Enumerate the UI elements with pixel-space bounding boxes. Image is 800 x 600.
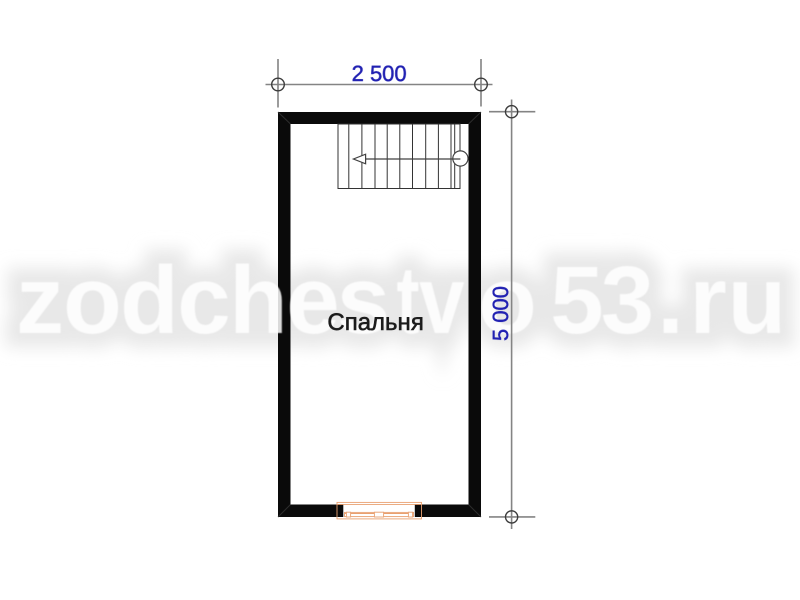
svg-text:t: t [396,247,419,354]
svg-text:h: h [229,247,288,354]
svg-text:r: r [689,247,726,354]
svg-text:u: u [728,247,787,354]
svg-text:Спальня: Спальня [327,309,423,336]
svg-text:o: o [63,247,122,354]
svg-text:3: 3 [601,247,654,354]
svg-text:z: z [16,247,64,354]
svg-text:5: 5 [550,247,603,354]
svg-text:.: . [657,247,684,354]
svg-text:e: e [286,247,339,354]
svg-text:5 000: 5 000 [488,286,513,341]
svg-text:c: c [177,247,230,354]
svg-text:2 500: 2 500 [352,61,407,86]
svg-text:v: v [419,247,464,354]
svg-text:s: s [337,247,390,354]
svg-text:d: d [120,247,179,354]
